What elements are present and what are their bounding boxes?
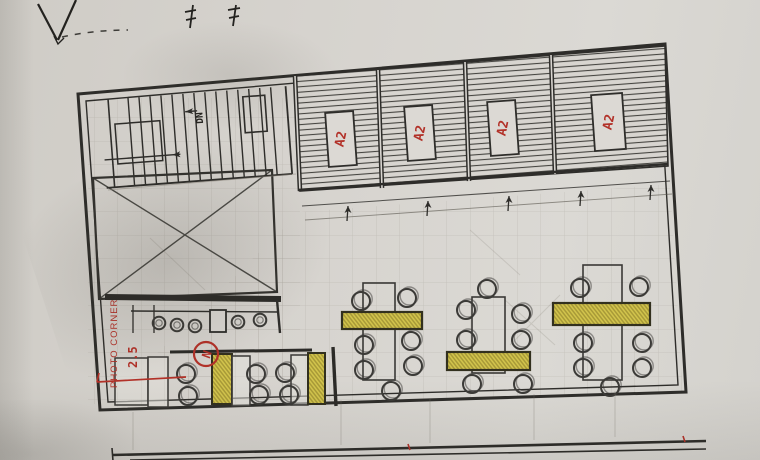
room-label: A2 (601, 113, 619, 131)
booth-table (232, 356, 250, 406)
yellow-bench (308, 353, 325, 404)
booth-table (148, 357, 168, 407)
floor-plan-drawing: DN A2 A2 A2 A2 (0, 0, 760, 460)
counter-column (210, 310, 226, 332)
room-label: A2 (412, 124, 430, 142)
yellow-bench (553, 303, 650, 325)
dashed-leader-line (62, 30, 128, 37)
room-label: A2 (495, 119, 513, 137)
yellow-bench (342, 312, 422, 329)
photo-corner-dimension: 2.5 (126, 346, 140, 368)
stair-direction-label: DN (194, 112, 206, 125)
v-arrow-mark (38, 0, 76, 40)
photographed-floor-plan-sketch: DN A2 A2 A2 A2 (0, 0, 760, 460)
photo-corner-label: PHOTO CORNER (109, 299, 120, 388)
booth-wall (170, 350, 312, 352)
yellow-bench (447, 352, 530, 370)
room-label: A2 (333, 130, 351, 148)
tiny-character-marks (185, 5, 240, 28)
corner-sketch-marks (38, 0, 240, 44)
